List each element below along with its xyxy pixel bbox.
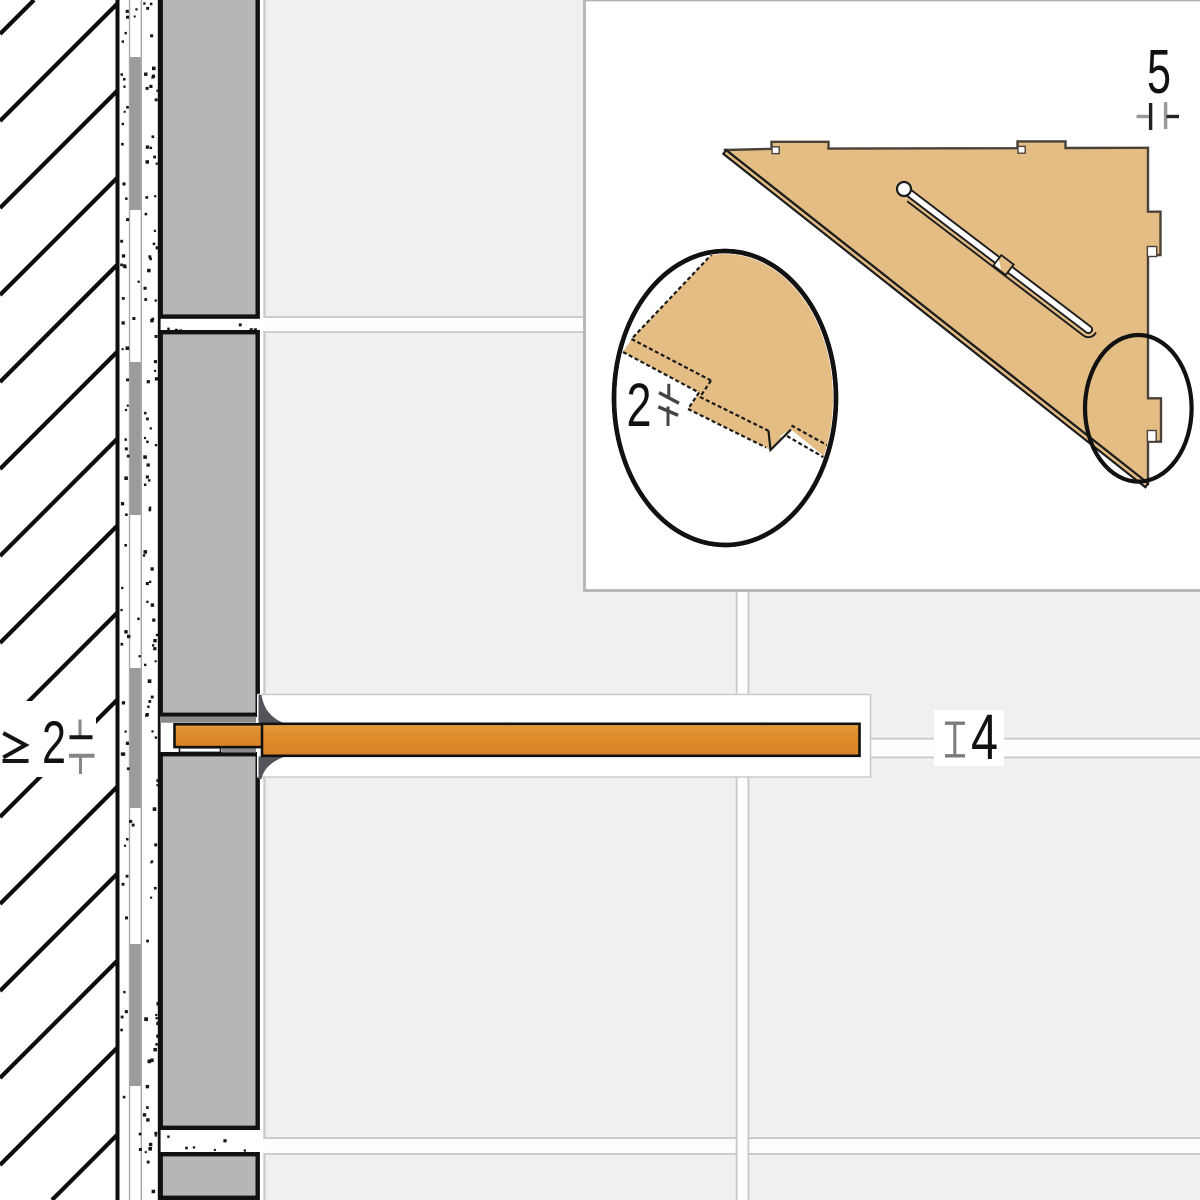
svg-text:5: 5 — [1147, 38, 1171, 107]
svg-text:2: 2 — [627, 371, 652, 439]
svg-text:4: 4 — [971, 701, 998, 773]
svg-text:2: 2 — [42, 709, 66, 776]
